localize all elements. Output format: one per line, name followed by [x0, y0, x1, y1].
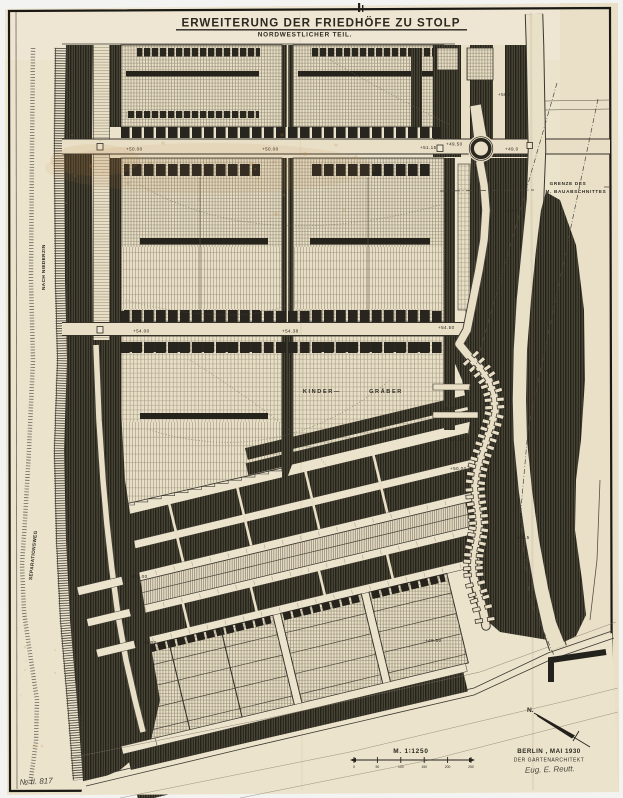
svg-text:+51.15: +51.15 — [420, 145, 437, 150]
svg-text:+49.0: +49.0 — [505, 147, 519, 152]
svg-text:+48.5: +48.5 — [516, 535, 530, 540]
svg-text:+50.0: +50.0 — [504, 208, 518, 213]
svg-text:M. BAUABSCHNITTES: M. BAUABSCHNITTES — [546, 189, 607, 194]
svg-text:+50.40: +50.40 — [448, 437, 465, 442]
svg-text:200: 200 — [445, 765, 451, 769]
svg-text:250: 250 — [468, 765, 474, 769]
svg-text:M. 1∶1250: M. 1∶1250 — [393, 748, 429, 755]
svg-text:№ II. 817: № II. 817 — [19, 776, 53, 787]
svg-text:+54.00: +54.00 — [133, 329, 150, 334]
svg-text:+54.38: +54.38 — [282, 329, 299, 334]
svg-text:50: 50 — [376, 765, 380, 769]
svg-text:DER GARTENARCHITEKT: DER GARTENARCHITEKT — [514, 758, 585, 764]
svg-text:GRÄBER: GRÄBER — [369, 388, 403, 395]
svg-text:GRENZE DES: GRENZE DES — [550, 181, 587, 186]
svg-text:KINDER—: KINDER— — [303, 389, 341, 395]
svg-text:+50.0: +50.0 — [498, 92, 512, 97]
svg-text:NACH NIEDERZIN: NACH NIEDERZIN — [41, 244, 46, 290]
svg-text:+51.00: +51.00 — [440, 406, 457, 411]
svg-text:150: 150 — [421, 765, 427, 769]
svg-text:BERLIN , MAI 1930: BERLIN , MAI 1930 — [517, 748, 581, 755]
svg-text:+48.50: +48.50 — [425, 638, 442, 643]
svg-text:0: 0 — [353, 765, 355, 769]
svg-text:+52.00: +52.00 — [131, 574, 148, 579]
svg-text:+54.50: +54.50 — [438, 325, 455, 330]
svg-text:+49.50: +49.50 — [446, 142, 463, 147]
svg-text:100: 100 — [398, 765, 404, 769]
svg-text:+53.00: +53.00 — [140, 640, 157, 645]
svg-text:NORDWESTLICHER TEIL.: NORDWESTLICHER TEIL. — [258, 32, 352, 39]
svg-text:ERWEITERUNG DER FRIEDHÖFE ZU S: ERWEITERUNG DER FRIEDHÖFE ZU STOLP — [182, 17, 461, 30]
svg-text:+50.00: +50.00 — [450, 466, 467, 471]
